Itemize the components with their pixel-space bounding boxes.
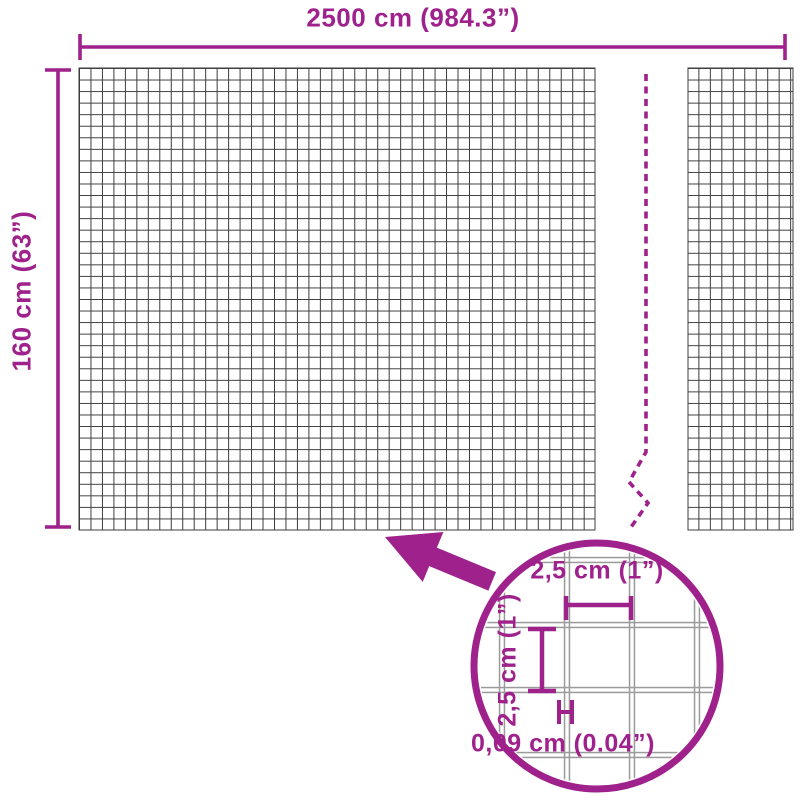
mesh-panel-continuation bbox=[688, 68, 793, 530]
top-dimension-line bbox=[80, 34, 785, 60]
break-line bbox=[629, 74, 648, 530]
diagram-canvas: 2500 cm (984.3”) 160 cm (63”) 2,5 cm (1”… bbox=[0, 0, 800, 800]
left-dimension-line bbox=[45, 70, 71, 527]
mesh-spacing-horizontal-label: 2,5 cm (1”) bbox=[530, 557, 663, 586]
overall-width-label: 2500 cm (984.3”) bbox=[306, 3, 519, 34]
wire-thickness-label: 0,09 cm (0.04”) bbox=[471, 730, 655, 759]
overall-height-label: 160 cm (63”) bbox=[7, 211, 38, 372]
diagram-graphics bbox=[0, 0, 800, 800]
mesh-panel bbox=[79, 68, 595, 530]
mesh-spacing-vertical-label: 2,5 cm (1”) bbox=[494, 593, 523, 726]
